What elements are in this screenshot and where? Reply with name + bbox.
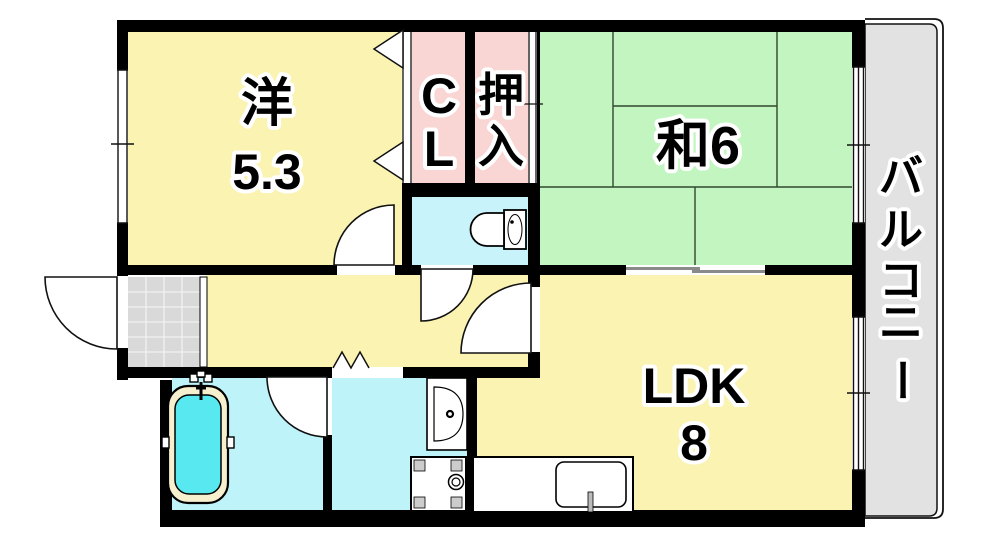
label-oshiire-line2: 入 [478, 120, 524, 172]
svg-text:ル: ル [879, 206, 923, 255]
svg-text:バ: バ [879, 153, 923, 202]
entrance-step-edge [200, 277, 207, 367]
entrance-door-gap [117, 276, 128, 348]
floor-plan: 洋 5.3 C L 押 入 和6 LDK 8 バ ル コ ニ ー [0, 0, 987, 541]
entrance-tile [128, 277, 207, 367]
toilet-fixture [471, 210, 527, 249]
sliding-door-japanese-ldk [618, 265, 773, 275]
wall-hall-bottom [117, 367, 540, 378]
wall-closet-divider [465, 32, 475, 197]
label-balcony: バ ル コ ニ ー [877, 153, 926, 403]
label-western-size: 5.3 [232, 144, 302, 200]
svg-text:ー: ー [877, 358, 926, 402]
kitchen-counter [473, 457, 633, 512]
wall-bath-divider [323, 435, 332, 512]
label-closet-line1: C [421, 68, 457, 124]
washroom-door-gap [332, 367, 403, 378]
wall-top [117, 20, 865, 32]
kitchen-faucet-icon [588, 492, 593, 512]
label-ldk-name: LDK [643, 358, 746, 414]
washbasin [427, 378, 467, 450]
western-door-gap [337, 265, 395, 275]
label-ldk-size: 8 [680, 415, 708, 471]
entrance-door-swing [45, 277, 117, 349]
label-oshiire-line1: 押 [478, 69, 524, 121]
label-closet-line2: L [424, 121, 455, 177]
label-japanese-room: 和6 [656, 116, 740, 176]
wall-closet-bottom [402, 183, 540, 197]
washing-machine-pan [411, 457, 466, 511]
svg-text:ニ: ニ [879, 299, 923, 348]
floor-plan-canvas: 洋 5.3 C L 押 入 和6 LDK 8 バ ル コ ニ ー [0, 0, 987, 541]
label-western-name: 洋 [241, 75, 293, 133]
